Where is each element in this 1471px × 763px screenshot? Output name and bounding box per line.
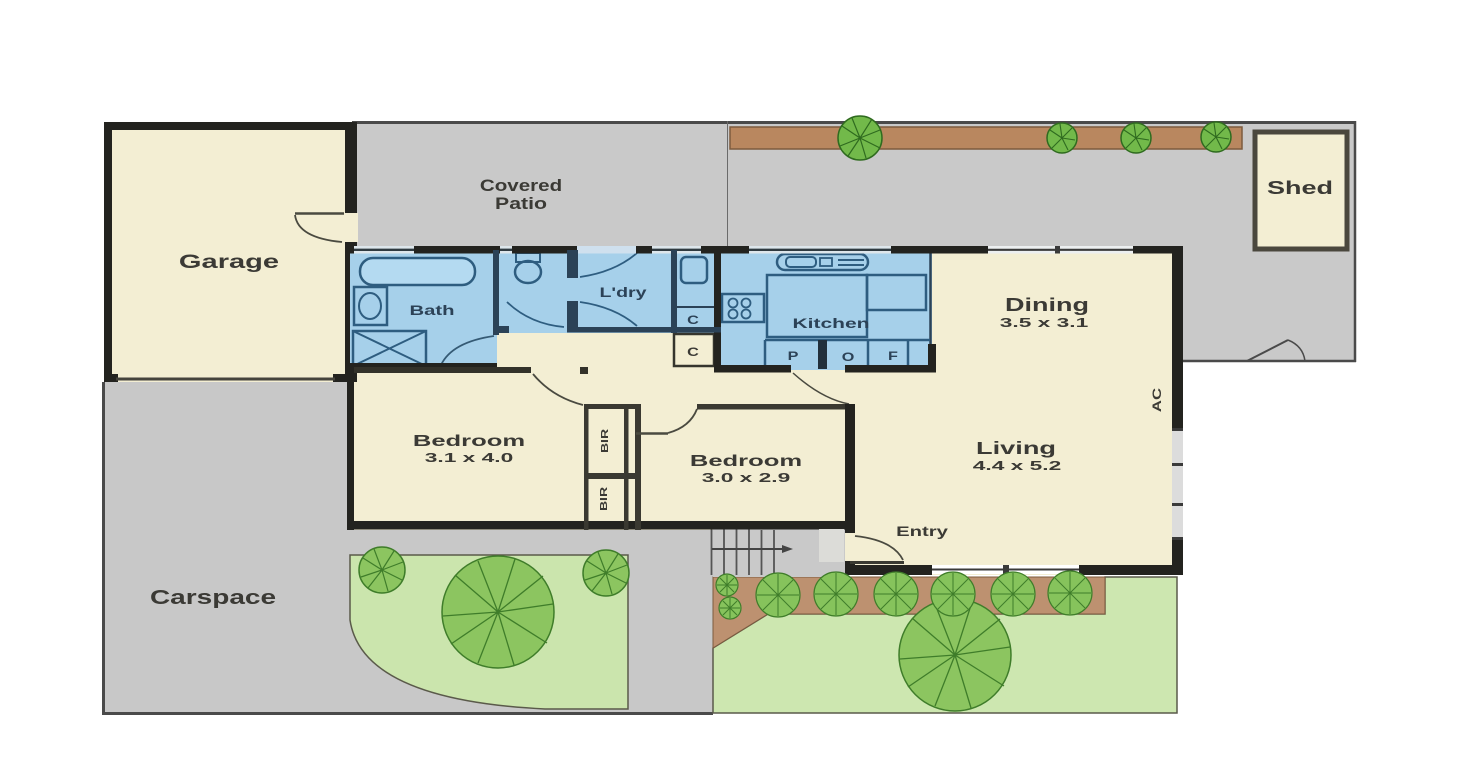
svg-text:Entry: Entry (896, 523, 948, 539)
svg-text:Covered: Covered (480, 176, 562, 195)
svg-text:Kitchen: Kitchen (793, 315, 870, 331)
svg-text:AC: AC (1151, 387, 1164, 412)
svg-text:BIR: BIR (599, 429, 611, 453)
svg-text:P: P (788, 350, 799, 363)
svg-text:BIR: BIR (598, 487, 610, 511)
svg-text:C: C (687, 346, 699, 359)
svg-text:Living: Living (976, 438, 1056, 458)
svg-text:3.1 x 4.0: 3.1 x 4.0 (425, 450, 514, 465)
svg-text:Shed: Shed (1267, 178, 1333, 198)
svg-text:3.0 x 2.9: 3.0 x 2.9 (702, 470, 791, 485)
svg-text:4.4 x 5.2: 4.4 x 5.2 (973, 458, 1062, 473)
svg-text:Garage: Garage (179, 252, 279, 273)
svg-text:Carspace: Carspace (150, 587, 276, 609)
svg-text:F: F (888, 350, 898, 363)
svg-text:Bedroom: Bedroom (690, 452, 802, 470)
svg-text:Bedroom: Bedroom (413, 432, 525, 450)
svg-text:3.5 x 3.1: 3.5 x 3.1 (1000, 315, 1089, 330)
svg-text:O: O (842, 351, 855, 364)
svg-text:Bath: Bath (409, 302, 454, 318)
svg-text:Dining: Dining (1005, 295, 1089, 315)
svg-text:Patio: Patio (495, 195, 547, 214)
svg-text:C: C (687, 314, 699, 327)
svg-text:L'dry: L'dry (599, 285, 647, 301)
